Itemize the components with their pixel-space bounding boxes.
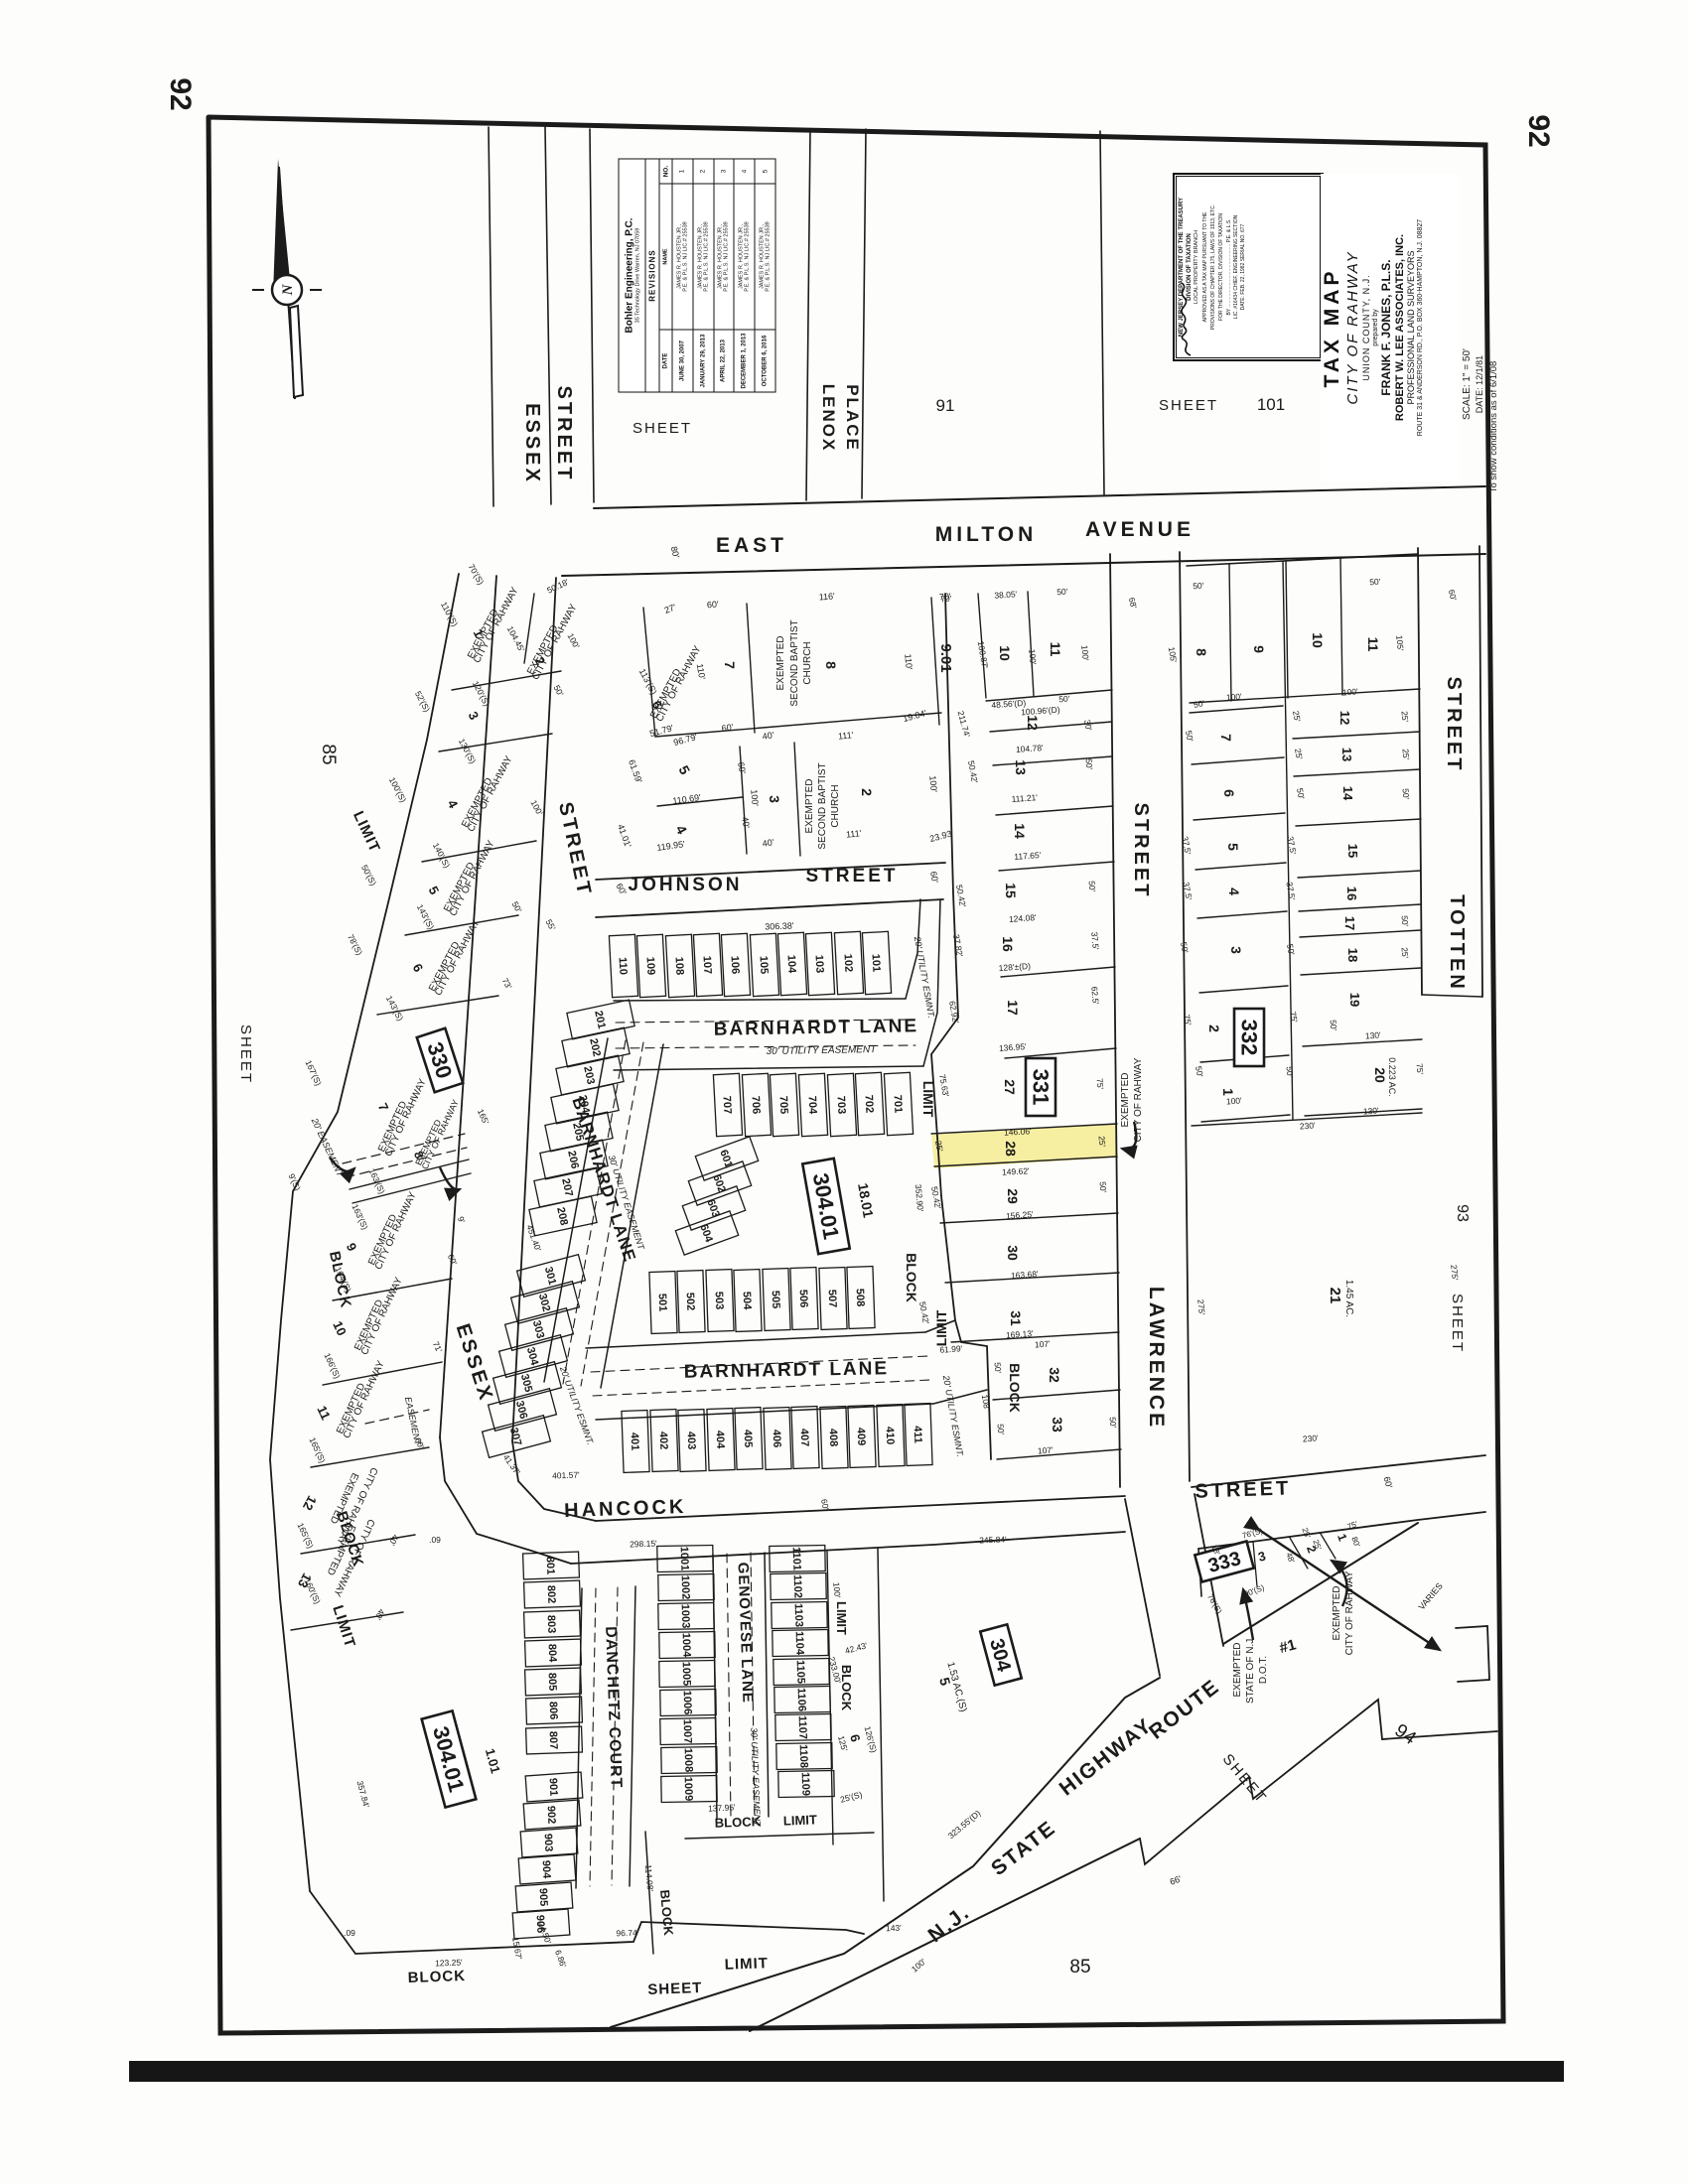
block-limit-label: BLOCK [657,1889,676,1937]
street-name-essex: ESSEX [452,1321,497,1406]
unit-number: 1106 [795,1688,808,1711]
unit-number: 403 [685,1432,698,1450]
dimension: 25' [933,1140,945,1153]
exempt-label: EXEMPTED [1232,1642,1243,1697]
dimension: 15.67' [510,1936,524,1961]
map-line [999,862,1114,871]
map-line [1301,968,1421,975]
revision-name: JAMES R. HOUSTEN JR.,P.E. & P.L.S. NJ LI… [673,185,693,331]
dimension: 50.42' [966,759,980,784]
dimension: 41.37' [501,1452,523,1477]
unit-number: 703 [835,1096,848,1115]
townhouse-unit: 101 [862,931,891,994]
column-header-date: DATE [660,331,672,392]
revision-date: DECEMBER 1, 2013 [735,331,755,392]
dimension: 130' [1365,1029,1382,1040]
townhouse-unit: 1101 [770,1546,825,1572]
north-letter: N [280,283,296,296]
dimension: 156.25' [1006,1209,1035,1221]
dimension: 352.90' [914,1184,925,1213]
dimension: 50' [993,1362,1004,1374]
revision-no: 5 [756,160,775,185]
dimension: 25' [1291,710,1303,723]
lot-number: 4 [1226,887,1242,895]
dimension: 38.05' [994,589,1018,601]
block-number-box: 304 [980,1624,1022,1685]
dimension: 100' [1079,644,1090,661]
exempt-label: D.O.T. [1258,1656,1269,1684]
dimension: 100' [831,1581,842,1598]
dimension: 167'(S) [303,1058,324,1087]
dimension: 37.5' [1089,931,1101,950]
dimension: 50' [1369,577,1381,588]
dimension: 166'(S) [322,1351,343,1380]
easement-label: 20' UTILITY ESMNT. [941,1374,965,1458]
map-line [1303,1039,1422,1046]
unit-number: 805 [546,1673,559,1692]
dimension: 23.93' [928,828,954,844]
townhouse-unit: 706 [742,1073,771,1136]
unit-number: 406 [771,1430,783,1448]
lot-number: 21 [1327,1288,1343,1304]
unit-number: 1104 [793,1631,806,1656]
danchetz-court-edge-e [630,1586,635,1886]
dimension: 107' [1035,1338,1052,1349]
dimension: 50' [1285,1066,1296,1078]
map-line [933,1390,987,1404]
dimension: 40' [762,837,774,849]
street-name-genovese: GENOVESE LANE [735,1562,757,1704]
unit-number: 902 [545,1806,558,1825]
dimension: 100' [1027,648,1038,665]
revision-no: 2 [693,160,713,185]
sheet-91-boundary-w [590,129,594,502]
dimension: 66' [1169,1873,1184,1887]
dimension: 100.96'(D) [1021,705,1060,718]
townhouse-unit: 103 [805,932,834,995]
dimension: 50' [1184,730,1196,743]
lot-number: 9 [1251,645,1267,653]
unit-number: 702 [863,1095,876,1114]
dimension: 37.5' [1284,882,1297,901]
unit-number: 201 [592,1010,608,1029]
firm-name: Bohler Engineering, P.C. [624,218,634,334]
unit-number: 207 [559,1177,575,1197]
townhouse-unit: 604 [675,1211,738,1255]
revision-license-line: P.E. & P.L.S. NJ LIC.# 25539 [724,221,730,291]
lot-number: 10 [997,645,1013,661]
map-line [439,734,552,751]
unit-number: 806 [547,1702,560,1720]
unit-number: 1006 [681,1691,694,1715]
street-name-east-milton: EAST [716,534,787,557]
dimension: 50' [1108,1417,1119,1429]
revision-name: JAMES R. HOUSTEN JR.,P.E. & P.L.S. NJ LI… [714,185,734,331]
lot-number: 10 [330,1318,350,1337]
revision-no: 1 [673,160,693,185]
dimension: 73' [500,976,514,991]
dimension: 40' [740,816,752,830]
townhouse-unit: 109 [636,934,665,997]
map-line [311,1447,429,1467]
townhouse-unit: 403 [678,1410,706,1472]
dimension: 40' [373,1607,387,1622]
dimension: 357.84' [354,1780,371,1810]
easement-label: 30' UTILITY EASEMENT [749,1727,763,1828]
exempt-label: CITY OF RAHWAY [433,918,483,998]
dimension: 401.57' [552,1470,580,1481]
map-line [1192,757,1284,764]
street-name-johnson: STREET [806,866,899,887]
map-line [794,743,800,856]
lot-number: 18 [1345,948,1360,962]
unit-number: 107 [701,956,714,975]
sheet-ref: 93 [1454,1204,1471,1222]
dimension: 104.78' [1016,743,1045,754]
street-name-totten: STREET [1443,677,1465,773]
unit-number: 707 [721,1096,734,1115]
dimension: 230' [1300,1120,1317,1131]
dimension: 70'(S) [467,562,487,587]
unit-number: 1004 [680,1633,693,1659]
dimension: 76'(S) [1205,1592,1224,1615]
unit-number: 404 [714,1431,727,1450]
townhouse-unit: 505 [763,1269,790,1331]
dimension: 130' [1363,1105,1380,1116]
unit-number: 508 [854,1289,867,1307]
dimension: 19.04' [902,708,927,724]
unit-number: 110 [617,957,630,975]
lot-number: 12 [300,1493,320,1513]
street-name-hancock: HANCOCK [564,1496,687,1522]
lot-number: 4 [445,797,462,811]
townhouse-unit: 1103 [772,1602,827,1629]
dimension: 50' [1087,881,1098,892]
lot-number: 33 [1050,1417,1065,1433]
revision-no: 4 [735,160,755,185]
dimension: 50'(S) [359,863,378,887]
street-name-highway: ROUTE [1145,1675,1224,1744]
townhouse-unit: 107 [693,933,722,996]
townhouse-unit: 601 [695,1137,758,1180]
revision-no: 3 [714,160,734,185]
unit-number: 303 [530,1319,546,1340]
dimension: 100' [1226,691,1243,702]
dimension: 60' [721,722,734,734]
townhouse-unit: 1108 [776,1743,832,1770]
firm-name: ROBERT W. LEE ASSOCIATES, INC. [1394,174,1407,481]
unit-number: 1108 [797,1744,810,1768]
dimension: 50' [552,683,566,698]
block-number-box: 304.01 [802,1159,849,1254]
dimension: 37.5' [1285,836,1298,856]
townhouse-unit: 702 [855,1072,884,1135]
townhouse-unit: 1006 [660,1690,716,1716]
dimension: 100' [566,631,582,650]
dimension: 96.79' [672,732,698,748]
dimension: 110' [695,663,708,681]
dimension: 50' [1056,587,1068,598]
block-limit-label: LIMIT [783,1812,817,1828]
dimension: 25' [1097,1136,1108,1148]
dimension: .09 [429,1535,441,1545]
dimension: 75' [1415,1063,1426,1075]
street-edge-johnson-s [596,899,943,917]
townhouse-unit: 201 [567,1000,634,1039]
dimension: 25' [1293,748,1305,760]
unit-number: 503 [713,1292,726,1310]
street-edge-essex-e [512,578,556,1441]
unit-number: 1001 [678,1547,691,1571]
lot-number: 14 [1012,823,1028,839]
dimension: 75' [1182,1014,1194,1026]
map-line [544,1038,608,1382]
lot-number: 27 [1002,1079,1018,1095]
dimension: 100' [529,798,545,817]
north-arrow-icon: N [252,159,322,399]
dimension: 30' [1082,719,1094,732]
dimension: 61.99' [939,1343,963,1355]
block-limit-label: LIMIT [920,1081,936,1118]
unit-number: 704 [806,1096,819,1116]
lot-number: 4 [673,822,691,837]
lot-number: 31 [1008,1310,1024,1326]
dimension: 75.63' [937,1073,951,1098]
unit-number: 706 [750,1096,763,1115]
dimension: 211.74' [956,710,973,739]
unit-number: 411 [912,1426,924,1443]
dimension: 42.43' [844,1640,869,1656]
revision-name: JAMES R. HOUSTEN JR.,P.E. & P.L.S. NJ LI… [693,185,713,331]
dimension: 50' [1193,698,1205,710]
lot-number: 11 [1048,642,1063,657]
townhouse-unit: 1107 [775,1714,831,1741]
map-title-block: TAX MAP CITY OF RAHWAY UNION COUNTY, N.J… [1321,174,1460,481]
revision-name: JAMES R. HOUSTEN JR.,P.E. & P.L.S. NJ LI… [735,185,755,331]
parcel-ref: #1 [1278,1636,1299,1657]
dimension: 50' [1193,581,1204,592]
dimension: 70' [940,594,952,605]
dimension: 100'(S) [387,775,409,804]
dimension: 149.62' [1002,1165,1030,1176]
firm-address: 35 Technology Drive Warren, NJ 07059 [634,228,640,324]
dimension: 50.42' [954,884,968,908]
unit-number: 601 [717,1149,735,1169]
dimension: 6.86' [553,1949,569,1970]
map-line [1125,1499,1160,1676]
easement-label: 30' UTILITY EASEMENT [767,1044,878,1057]
lot-number: 3 [466,709,483,722]
unit-number: 202 [587,1037,603,1057]
map-line [593,1380,930,1396]
exempt-label: EXEMPTED [775,635,786,690]
column-header-name: NAME [660,185,672,331]
dimension: .09 [344,1928,355,1938]
lot-number: 3 [1256,1548,1267,1564]
block-limit-label: LIMIT [350,808,383,855]
street-name-essex: STREET [553,386,575,482]
unit-number: 807 [547,1731,560,1750]
dimension: 111' [846,828,863,840]
lot-number: 15 [1345,844,1360,858]
townhouse-unit: 703 [827,1073,856,1136]
street-name-hancock: STREET [1195,1477,1292,1502]
dimension: 108' [980,1394,993,1412]
street-name-totten: TOTTEN [1446,894,1468,992]
dimension: 100' [927,775,938,793]
revision-license-line: P.E. & P.L.S. NJ LIC.# 25539 [703,221,709,291]
map-line [1293,732,1420,739]
street-edge-essex-top-e [545,127,551,504]
unit-number: 306 [513,1400,529,1421]
exempt-label: SECOND BAPTIST [817,762,828,849]
dimension: 60' [819,1498,831,1511]
unit-number: 705 [777,1096,790,1115]
street-edge-totten-e [1479,546,1482,997]
unit-number: 108 [673,957,686,976]
townhouse-unit: 901 [525,1772,583,1802]
revision-date: OCTOBER 6, 2016 [756,331,775,392]
lot-number: 11 [314,1404,333,1423]
map-line [343,1134,465,1163]
unit-number: 1103 [792,1603,805,1627]
area-label: 1.53 AC.(S) [944,1661,968,1713]
unit-number: 803 [545,1615,558,1634]
dimension: 124.08' [1009,912,1038,924]
block-limit-label: LIMIT [933,1309,949,1346]
dimension: 75' [1095,1078,1106,1090]
townhouse-unit: 905 [515,1882,573,1912]
unit-number: 106 [729,956,742,975]
map-line [1340,558,1342,695]
lot-number: 1 [1220,1088,1236,1096]
sheet-ref: SHEET [647,1979,703,1998]
revision-date: JANUARY 29, 2013 [693,331,713,392]
unit-number: 602 [710,1173,728,1194]
townhouse-unit: 503 [706,1270,734,1332]
dimension: 140'(S) [431,841,453,870]
unit-number: 1101 [790,1547,803,1570]
surveyor-name: FRANK F. JONES, P.L.S. [1380,174,1394,481]
scale-label: SCALE: 1" = 50' [1462,348,1473,420]
lot-number: 12 [1025,715,1041,731]
street-name-highway: STATE [987,1817,1060,1881]
unit-number: 401 [629,1433,641,1451]
street-name-johnson: JOHNSON [629,875,743,895]
townhouse-unit: 704 [798,1073,827,1136]
townhouse-unit: 110 [609,934,637,997]
dimension: 27' [663,602,678,615]
map-line [685,1833,874,1839]
dimension: 100' [1226,1095,1243,1106]
lot-number: 1 [1335,1532,1350,1543]
dimension: 113'(S) [637,667,659,696]
sheet-ref: 85 [318,744,339,764]
street-name-lenox-place: LENOX [819,384,838,453]
map-line [878,1549,884,1901]
block-number: 332 [1236,1020,1261,1056]
townhouse-unit: 1004 [659,1632,715,1659]
block-number-box: 304.01 [422,1710,477,1807]
map-line [747,604,755,733]
lot-number: 1.01 [483,1747,503,1775]
townhouse-unit: 102 [834,931,863,994]
dimension: 50' [1098,1181,1109,1193]
townhouse-unit: 506 [790,1268,818,1330]
dimension: 100.87' [976,640,991,669]
street-name-lenox-place: PLACE [843,384,862,452]
townhouse-unit: 408 [820,1407,848,1469]
dimension: 50' [1285,943,1297,956]
townhouse-unit: 904 [518,1854,576,1884]
unit-number: 505 [770,1291,782,1309]
map-line [590,1588,596,1886]
map-line [1456,1626,1489,1682]
stamp-by-line: BY .....................................… [1226,178,1232,356]
dimension: 60' [928,871,940,885]
approval-signature [1175,280,1196,359]
unit-number: 804 [546,1644,559,1664]
townhouse-unit: 902 [523,1800,581,1830]
map-line [1028,592,1034,696]
unit-number: 410 [884,1427,897,1445]
map-line [1196,863,1286,870]
barnhardt-lane-edge [614,1066,923,1070]
unit-number: 102 [842,954,855,973]
street-name-essex: ESSEX [521,403,543,484]
townhouse-unit: 903 [520,1828,578,1857]
sheet-ref: SHEET [237,1024,254,1084]
townhouse-unit: 707 [713,1073,742,1136]
unit-number: 208 [554,1206,570,1226]
townhouse-unit: 507 [819,1268,847,1330]
townhouse-unit: 1109 [778,1771,834,1798]
lot-number: 17 [1342,916,1357,930]
unit-number: 103 [813,955,826,974]
map-line [645,1832,653,1954]
lot-number: 10 [1310,632,1326,648]
firm-role: PROFESSIONAL LAND SURVEYORS [1406,174,1416,481]
sheet-ref: 94 [1390,1720,1420,1750]
lot-number: 16 [1000,936,1016,952]
page-number: 92 [164,77,197,110]
street-name-highway: N.J. [924,1900,975,1947]
street-name-east-milton: MILTON [935,523,1038,546]
dimension: 50' [510,899,524,914]
street-name-lawrence: STREET [1130,803,1152,899]
unit-number: 101 [870,954,883,973]
dimension: 146.06' [1004,1126,1032,1137]
dimension: 230' [1303,1433,1320,1443]
map-title: TAX MAP [1321,174,1344,481]
scan-edge-artifact [129,2061,1564,2082]
dimension: 25' [1300,1527,1312,1540]
unit-number: 506 [797,1290,810,1308]
exempt-label: CITY OF RAHWAY [448,839,497,918]
dimension: 68' [1127,597,1140,611]
dimension: 96.74' [616,1928,639,1939]
lot-number: 30 [1005,1245,1021,1261]
dimension: 114.08' [643,1864,655,1892]
street-name-barnhardt: BARNHARDT LANE [684,1358,890,1383]
map-line [346,1148,467,1177]
unit-number: 405 [742,1430,755,1448]
exempt-label: CITY OF RAHWAY [342,1359,387,1440]
map-line [1194,813,1285,820]
conditions-note: To show conditions as of 6/1/08 [1488,361,1499,493]
map-line [586,1332,925,1348]
block-limit-label: BLOCK [1007,1363,1023,1413]
